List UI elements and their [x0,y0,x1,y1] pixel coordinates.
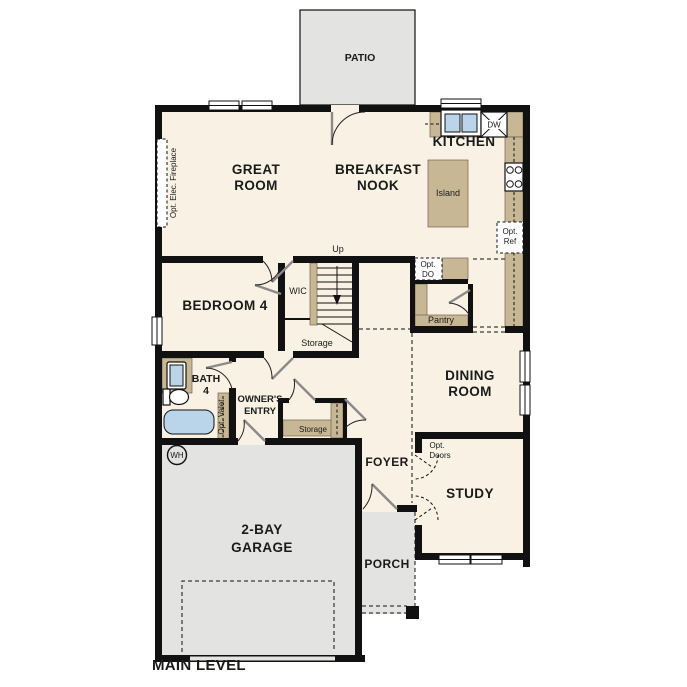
study-label: STUDY [446,486,494,501]
stair-wall-cap [310,263,317,325]
pantry-label: Pantry [428,315,455,325]
foyer-label: FOYER [365,455,408,469]
floor-plan-svg: PATIO [0,0,687,687]
bath-label-2: 4 [203,385,209,397]
opt-ref-label-1: Opt. [502,227,517,236]
bath-label-1: BATH [192,373,220,385]
main-level-title: MAIN LEVEL [152,657,246,674]
storage-closet-label: Storage [299,425,328,434]
great-room-label-1: GREAT [232,162,281,177]
owners-entry-label-2: ENTRY [244,406,277,417]
opt-doors-label-1: Opt. [429,441,444,450]
range [505,163,523,191]
window [209,101,239,110]
bath-sink [167,362,186,389]
patio-label: PATIO [345,52,376,64]
breakfast-nook-label-2: NOOK [357,178,399,193]
wic-label: WIC [289,286,307,296]
window [471,555,502,564]
breakfast-nook-label-1: BREAKFAST [335,162,421,177]
patio-area: PATIO [300,10,415,105]
owners-entry-label-1: OWNER'S [237,394,282,405]
opt-ref-label-2: Ref [504,237,517,246]
garage-label-1: 2-BAY [241,522,282,537]
window [152,317,162,345]
opt-do-label-1: Opt. [420,260,435,269]
fireplace-label: Opt. Elec. Fireplace [169,147,178,218]
great-room-label-2: ROOM [234,178,278,193]
window [520,385,530,415]
porch-label: PORCH [364,557,409,571]
toilet [163,389,189,405]
water-heater-label: WH [170,451,184,460]
floor-plan: PATIO [0,0,687,687]
dishwasher-label: DW [487,121,501,130]
window [441,99,481,108]
bedroom4-label: BEDROOM 4 [182,298,267,313]
window [520,351,530,382]
dining-label-2: ROOM [448,384,492,399]
up-label: Up [332,244,344,254]
dining-label-1: DINING [445,368,495,383]
optional-double-oven: Opt. DO [415,258,442,280]
opt-do-label-2: DO [422,270,434,279]
window [439,555,470,564]
kitchen-sink [441,110,481,136]
kitchen-label: KITCHEN [433,134,496,149]
storage-stairs-label: Storage [301,338,333,348]
water-heater: WH [168,446,187,465]
island-label: Island [436,188,460,198]
window [242,101,272,110]
optional-refrigerator: Opt. Ref [497,222,523,253]
porch-post [406,606,419,619]
opt-valet-label: Opt. Valet [217,399,226,435]
opt-doors-label-2: Doors [429,451,450,460]
garage-label-2: GARAGE [231,540,293,555]
bathtub [164,410,214,434]
